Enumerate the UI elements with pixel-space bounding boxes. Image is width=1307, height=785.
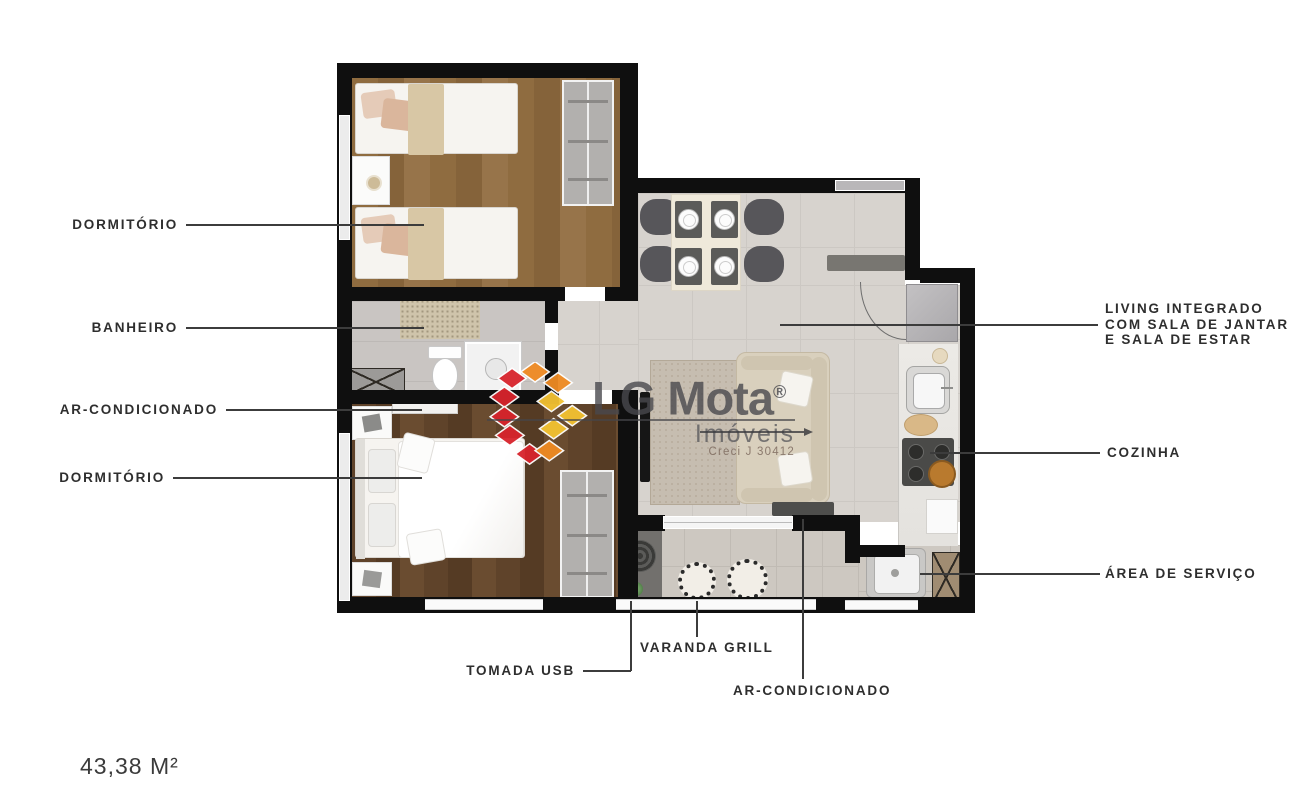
service-window [845,600,918,610]
ac-unit-living [772,502,834,516]
lgmota-subtitle: Imóveis [487,420,795,449]
plate [678,209,699,230]
tank-drain [891,569,899,577]
sideboard [827,255,905,271]
label-banheiro: BANHEIRO [92,320,178,335]
sofa-arm [741,488,813,502]
kitchen-sink [906,366,950,414]
leader-varanda-grill [696,601,698,637]
label-area-servico: ÁREA DE SERVIÇO [1105,566,1257,581]
wardrobe-bedroom1 [562,80,614,206]
label-ar-condicionado-2: AR-CONDICIONADO [733,683,891,698]
nightstand [352,406,392,440]
door-track [664,522,792,523]
label-living-line3: E SALA DE ESTAR [1105,332,1289,348]
placemat [711,201,738,238]
pillow [368,449,396,493]
single-bed-top [355,83,518,154]
bedroom2-window-bottom [425,599,543,610]
label-living: LIVING INTEGRADO COM SALA DE JANTAR E SA… [1105,301,1289,348]
label-dormitorio-2: DORMITÓRIO [59,470,165,485]
leader-banheiro [186,327,424,329]
burner [908,466,924,482]
clothes-rail [567,494,607,497]
label-living-line1: LIVING INTEGRADO [1105,301,1289,317]
label-dormitorio-1: DORMITÓRIO [72,217,178,232]
window-bedroom2 [339,433,350,601]
wall [858,545,905,557]
placemat [675,201,702,238]
subtitle-arrowhead [804,428,813,436]
label-varanda-grill: VARANDA GRILL [640,640,774,655]
wall [638,515,665,531]
area-label: 43,38 M² [80,753,179,780]
door-gap-bedroom1 [565,287,605,301]
clothes-rail [567,534,607,537]
label-living-line2: COM SALA DE JANTAR [1105,317,1289,333]
single-bed-bottom [355,207,518,279]
plate [714,256,735,277]
throw-pillow [405,528,446,566]
faucet [941,387,953,389]
label-ar-condicionado-1: AR-CONDICIONADO [60,402,218,417]
pouf-chair [727,559,768,600]
nightstand [352,156,390,205]
dining-chair [744,199,784,235]
wardrobe-bedroom2 [560,470,614,598]
bed-throw [408,84,444,155]
wall [337,287,567,301]
registered-mark: ® [773,382,786,402]
lgmota-wordmark: LG Mota® [592,368,786,423]
wall [605,287,638,301]
leader-tomada-usb-v [630,601,632,671]
burner [908,444,924,460]
balcony-sliding-door [663,516,793,529]
bowl [932,348,948,364]
leader-ar-condicionado-2 [802,519,804,679]
balcony-glass-rail [616,599,816,610]
placemat [675,248,702,285]
leader-area-servico [920,573,1100,575]
clothes-rail [567,572,607,575]
pouf-chair [678,562,716,600]
nightstand [352,562,392,596]
leader-living [780,324,1098,326]
clothes-rail [568,100,608,103]
clothes-rail [568,140,608,143]
wall [620,78,638,290]
cutting-board [904,414,938,436]
dining-chair [744,246,784,282]
decor-magazine [362,570,382,588]
bed-throw [408,208,444,280]
creci-license: Creci J 30412 [487,446,795,458]
leader-cozinha [930,452,1100,454]
plate [714,209,735,230]
leader-tomada-usb-h [583,670,631,672]
counter-appliance [926,499,958,534]
door-gap-bathroom [545,323,558,350]
leader-dormitorio-1 [186,224,424,226]
entry-opening [835,180,905,191]
floorplan-canvas: LG Mota® Imóveis Creci J 30412 DORMITÓRI… [0,0,1307,785]
label-cozinha: COZINHA [1107,445,1181,460]
pan [928,460,956,488]
pillow [368,503,396,547]
clothes-rail [568,178,608,181]
subtitle-arrow-line [700,431,804,433]
bathroom-mosaic-wall [400,299,480,339]
plate [678,256,699,277]
wall [337,63,638,78]
headboard [356,439,365,559]
cooktop [902,438,954,486]
leader-dormitorio-2 [173,477,422,479]
wall [905,178,920,280]
dining-table [671,194,741,291]
placemat [711,248,738,285]
window-bedroom1 [339,115,350,240]
lamp [366,175,382,191]
label-tomada-usb: TOMADA USB [466,663,575,678]
toilet-bowl [432,358,458,392]
wall [960,268,975,613]
decor-frame [362,414,383,433]
sink-basin [913,373,945,409]
wall [545,299,558,323]
leader-ar-condicionado-1 [226,409,422,411]
refrigerator [906,284,958,342]
